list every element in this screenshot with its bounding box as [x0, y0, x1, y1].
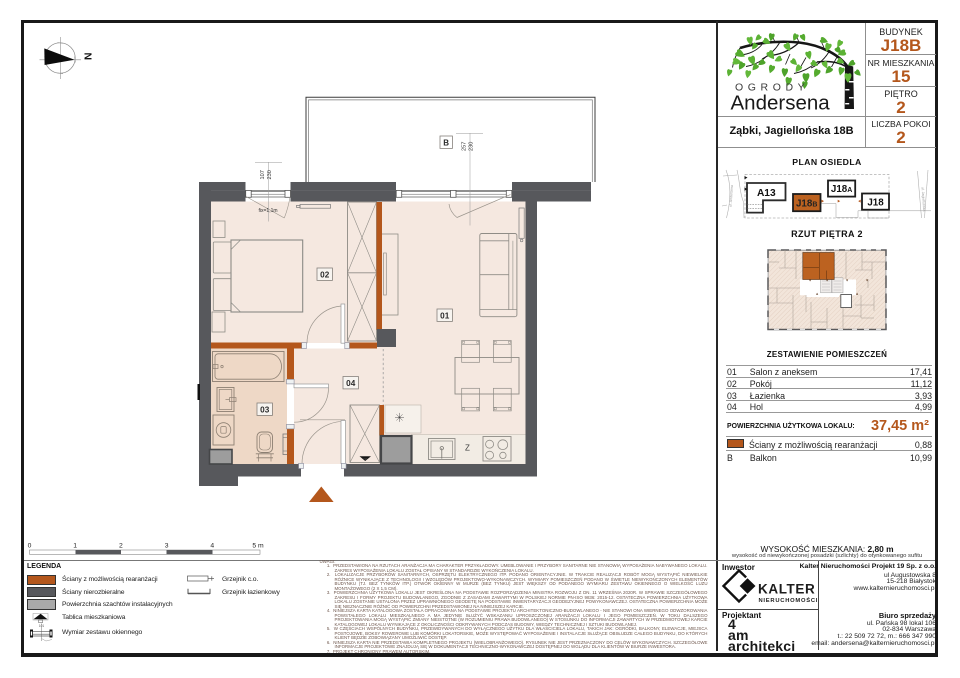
svg-text:3: 3: [165, 543, 169, 550]
svg-text:Andersena: Andersena: [731, 92, 831, 115]
svg-text:N: N: [82, 53, 94, 61]
svg-text:ul. Andersena: ul. Andersena: [729, 185, 735, 207]
svg-text:04: 04: [346, 379, 356, 388]
svg-text:NIERUCHOMOŚCI: NIERUCHOMOŚCI: [759, 597, 819, 604]
svg-text:Z: Z: [465, 444, 470, 453]
svg-text:2: 2: [119, 543, 123, 550]
svg-text:03: 03: [260, 405, 270, 414]
svg-text:fix=1,1m: fix=1,1m: [259, 208, 278, 214]
svg-text:257: 257: [461, 142, 467, 151]
svg-text:107: 107: [260, 170, 266, 179]
svg-text:0: 0: [28, 543, 32, 550]
svg-text:5 m: 5 m: [252, 543, 264, 550]
svg-text:1: 1: [73, 543, 77, 550]
svg-text:TM: TM: [363, 458, 367, 461]
svg-text:01: 01: [440, 311, 450, 320]
svg-text:4: 4: [210, 543, 214, 550]
svg-text:J18: J18: [867, 198, 884, 209]
svg-text:ul. Jagiellońska: ul. Jagiellońska: [921, 187, 927, 212]
svg-text:B: B: [443, 138, 449, 147]
svg-text:A13: A13: [757, 188, 776, 199]
svg-text:230: 230: [468, 142, 474, 151]
svg-text:230: 230: [267, 170, 273, 179]
svg-text:02: 02: [320, 270, 330, 279]
